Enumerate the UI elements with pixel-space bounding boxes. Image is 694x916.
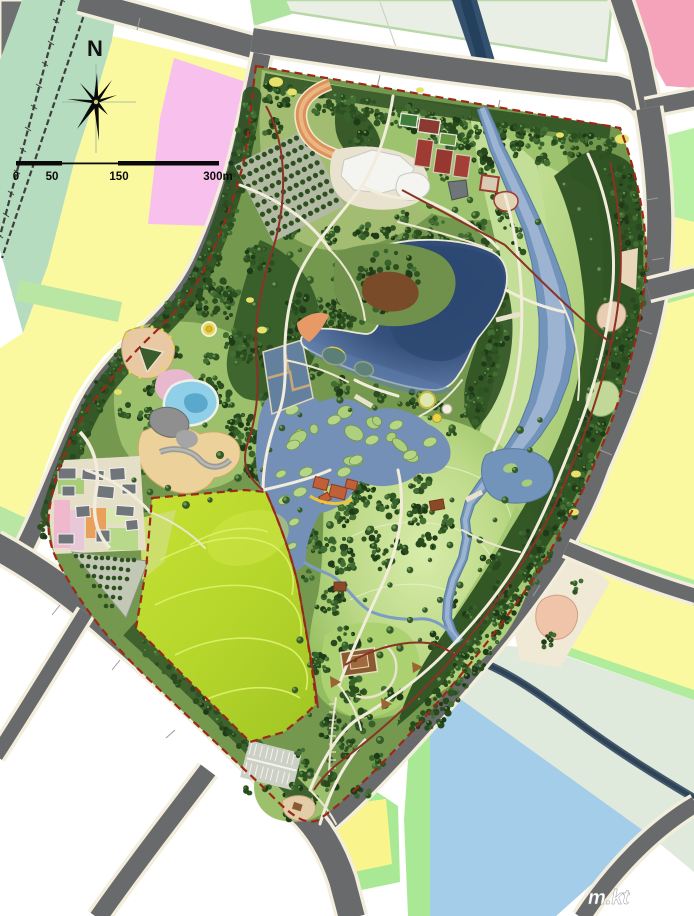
svg-text:N: N: [87, 36, 103, 61]
svg-text:m.kt: m.kt: [588, 887, 630, 909]
svg-text:0: 0: [13, 171, 19, 183]
svg-text:50: 50: [46, 171, 59, 183]
svg-text:150: 150: [109, 171, 128, 183]
svg-text:300m: 300m: [203, 171, 232, 183]
